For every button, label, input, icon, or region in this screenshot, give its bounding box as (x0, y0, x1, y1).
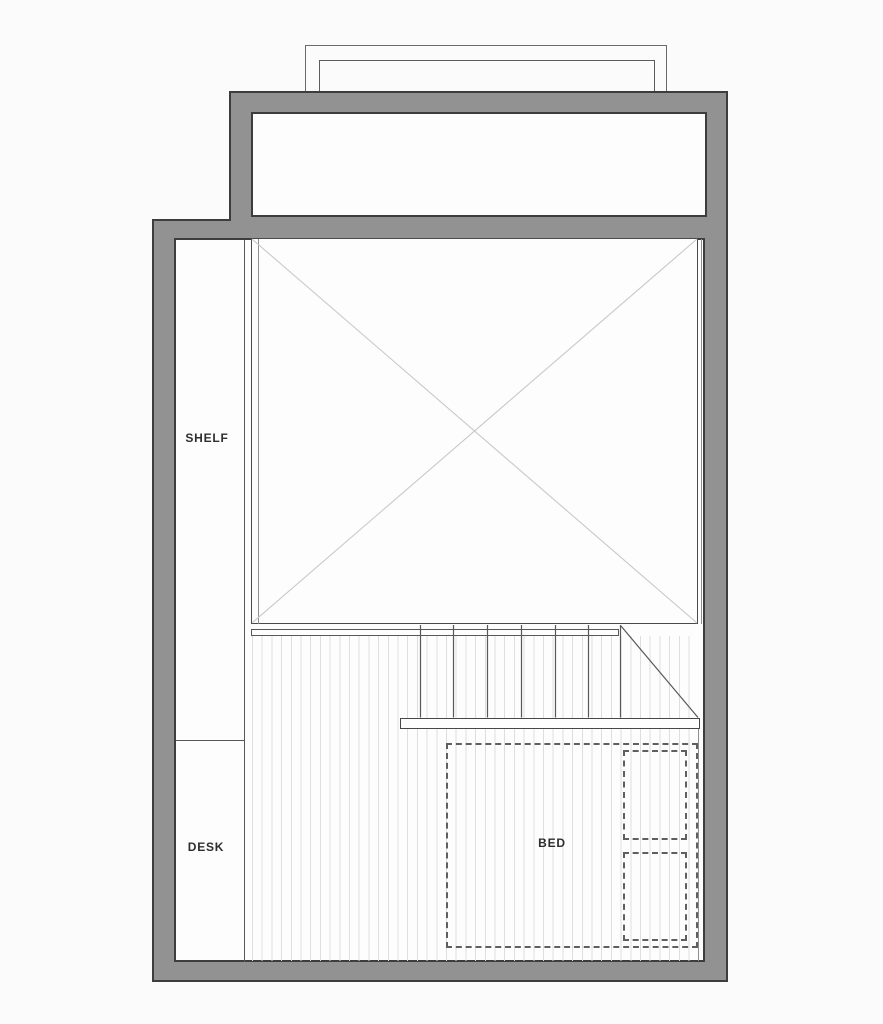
bed-pillow-top (623, 750, 687, 840)
mezzanine-railing (251, 629, 619, 636)
stair-landing-bar (400, 718, 700, 729)
bumpout-room (251, 112, 707, 217)
void-right-outer-line (701, 239, 702, 624)
shelf-label: SHELF (185, 431, 228, 445)
roof-outline-inner (319, 60, 655, 93)
bed-pillow-bottom (623, 852, 687, 941)
void-left-inner-line (258, 239, 259, 624)
void-room-outline (251, 238, 698, 624)
shelf-desk-divider-line (176, 740, 244, 741)
bumpout-wall-left-edge (229, 91, 231, 221)
floor-right-edge-line (698, 729, 699, 961)
shelf-column-line (244, 240, 245, 962)
bed-label: BED (538, 836, 566, 850)
bumpout-wall-right-edge (726, 91, 728, 241)
desk-label: DESK (188, 840, 225, 854)
floor-plan-canvas: SHELF DESK BED (0, 0, 883, 1024)
main-wall-top-edge (152, 219, 231, 221)
